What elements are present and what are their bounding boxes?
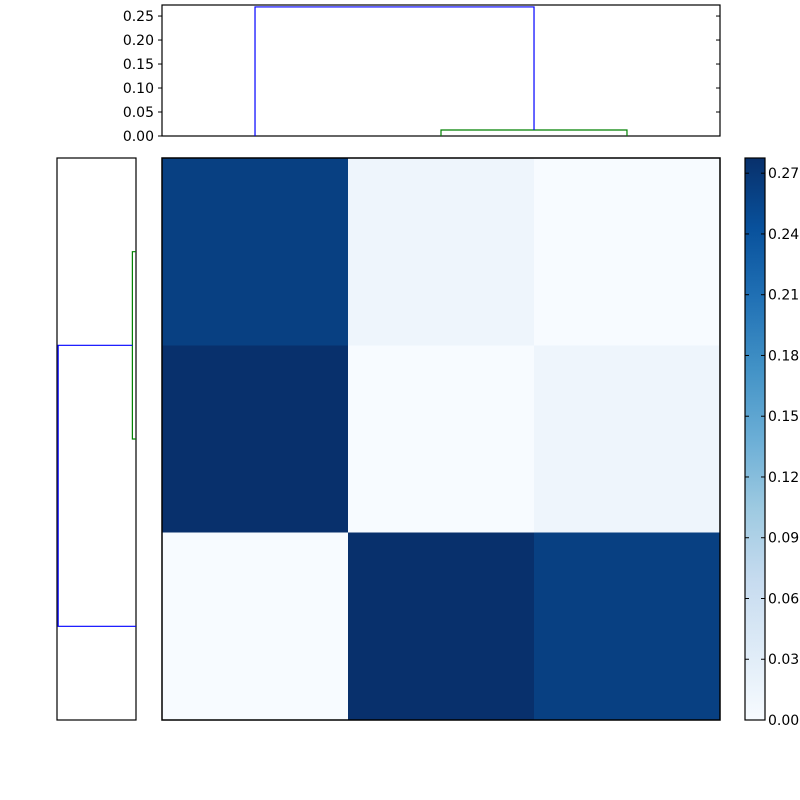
clustermap-figure: 0.000.050.100.150.200.250.000.030.060.09… [0,0,800,800]
heatmap-cell-r2c2 [534,533,721,721]
heatmap-cell-r1c1 [348,345,535,533]
heatmap-cell-r0c2 [534,158,721,346]
colorbar-tick-label: 0.21 [768,288,799,304]
heatmap-cell-r0c0 [162,158,349,346]
colorbar-tick-label: 0.27 [768,166,799,182]
colorbar-tick-label: 0.03 [768,652,799,668]
clustermap-canvas: 0.000.050.100.150.200.250.000.030.060.09… [0,0,800,800]
top-axis-tick-label: 0.20 [123,33,154,49]
colorbar-tick-label: 0.06 [768,591,799,607]
heatmap-cell-r1c0 [162,345,349,533]
colorbar-tick-label: 0.24 [768,227,799,243]
heatmap-cell-r2c0 [162,533,349,721]
colorbar-tick-label: 0.00 [768,713,799,729]
top-axis-tick-label: 0.05 [123,105,154,121]
colorbar-tick-label: 0.09 [768,531,799,547]
top-dendrogram-panel [162,5,720,136]
top-axis-tick-label: 0.25 [123,9,154,25]
heatmap-cell-r1c2 [534,345,721,533]
colorbar-gradient [745,158,765,720]
left-dendrogram-panel [57,158,136,720]
colorbar-tick-label: 0.15 [768,409,799,425]
colorbar-tick-label: 0.18 [768,348,799,364]
top-axis-tick-label: 0.15 [123,57,154,73]
heatmap-cell-r0c1 [348,158,535,346]
colorbar-tick-label: 0.12 [768,470,799,486]
heatmap-cell-r2c1 [348,533,535,721]
top-axis-tick-label: 0.00 [123,129,154,145]
top-axis-tick-label: 0.10 [123,81,154,97]
